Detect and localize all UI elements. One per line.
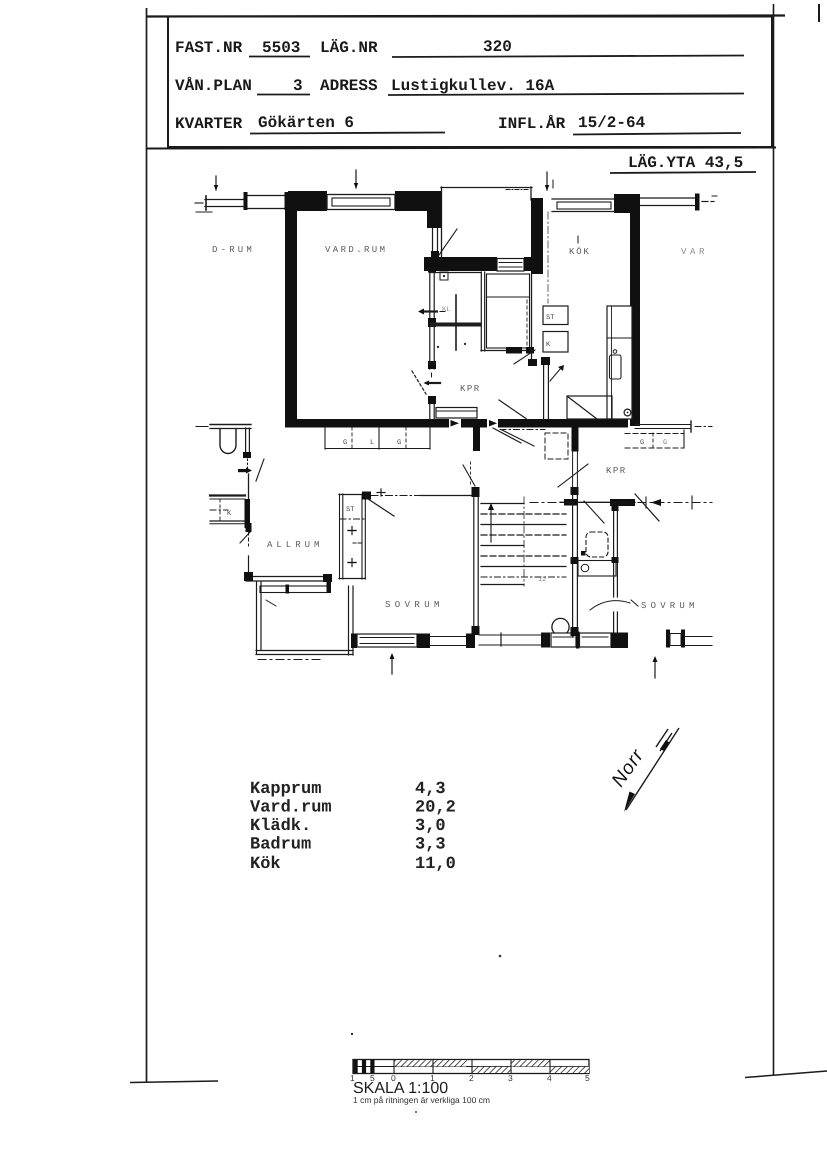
svg-text:VARD.RUM: VARD.RUM (325, 245, 387, 255)
svg-text:Vard.rum: Vard.rum (250, 799, 332, 818)
svg-text:3,3: 3,3 (415, 836, 446, 855)
svg-text:3: 3 (508, 1073, 513, 1083)
svg-text:Kapprum: Kapprum (250, 780, 321, 799)
svg-text:3: 3 (293, 77, 303, 95)
svg-text:SOVRUM: SOVRUM (641, 601, 699, 611)
svg-text:Gökärten 6: Gökärten 6 (258, 114, 354, 132)
svg-text:Klädk.: Klädk. (250, 817, 311, 836)
svg-text:2: 2 (469, 1073, 474, 1083)
svg-text:ALLRUM: ALLRUM (267, 540, 323, 550)
svg-text:G: G (640, 439, 644, 447)
svg-text:Kök: Kök (250, 855, 281, 874)
svg-text:FAST.NR: FAST.NR (175, 39, 243, 57)
svg-text:LÄG.YTA 43,5: LÄG.YTA 43,5 (628, 154, 743, 172)
svg-text:SOVRUM: SOVRUM (385, 600, 444, 610)
svg-text:VAR: VAR (681, 247, 708, 257)
svg-text:1 cm på ritningen är verkliga: 1 cm på ritningen är verkliga 100 cm (353, 1095, 490, 1105)
svg-text:5503: 5503 (262, 39, 300, 57)
svg-text:15/2-64: 15/2-64 (578, 114, 646, 132)
svg-text:11,0: 11,0 (415, 855, 456, 874)
svg-text:Badrum: Badrum (250, 836, 311, 855)
svg-text:LÄG.NR: LÄG.NR (320, 39, 378, 57)
svg-text:3,0: 3,0 (415, 817, 446, 836)
svg-text:KPR: KPR (606, 466, 627, 476)
svg-text:VÅN.PLAN: VÅN.PLAN (175, 76, 252, 95)
svg-text:KVARTER: KVARTER (175, 115, 243, 133)
svg-text:G: G (663, 439, 667, 447)
svg-text:ST: ST (346, 506, 354, 514)
svg-text:KÖK: KÖK (569, 246, 591, 257)
svg-text:KL: KL (442, 306, 450, 314)
svg-text:4: 4 (547, 1073, 552, 1083)
svg-text:L: L (370, 439, 374, 447)
svg-text:ST: ST (546, 314, 554, 322)
svg-text:G: G (397, 439, 401, 447)
svg-text:KPR: KPR (460, 384, 481, 394)
svg-text:5: 5 (585, 1073, 590, 1083)
svg-text:320: 320 (483, 38, 512, 56)
svg-text:ADRESS: ADRESS (320, 77, 378, 95)
svg-text:Lustigkullev. 16A: Lustigkullev. 16A (391, 77, 555, 95)
svg-text:12: 12 (538, 576, 546, 584)
svg-text:INFL.ÅR: INFL.ÅR (498, 114, 566, 133)
svg-text:G: G (343, 439, 347, 447)
svg-text:4,3: 4,3 (415, 780, 446, 799)
svg-text:D-RUM: D-RUM (212, 245, 255, 255)
svg-text:20,2: 20,2 (415, 799, 456, 818)
